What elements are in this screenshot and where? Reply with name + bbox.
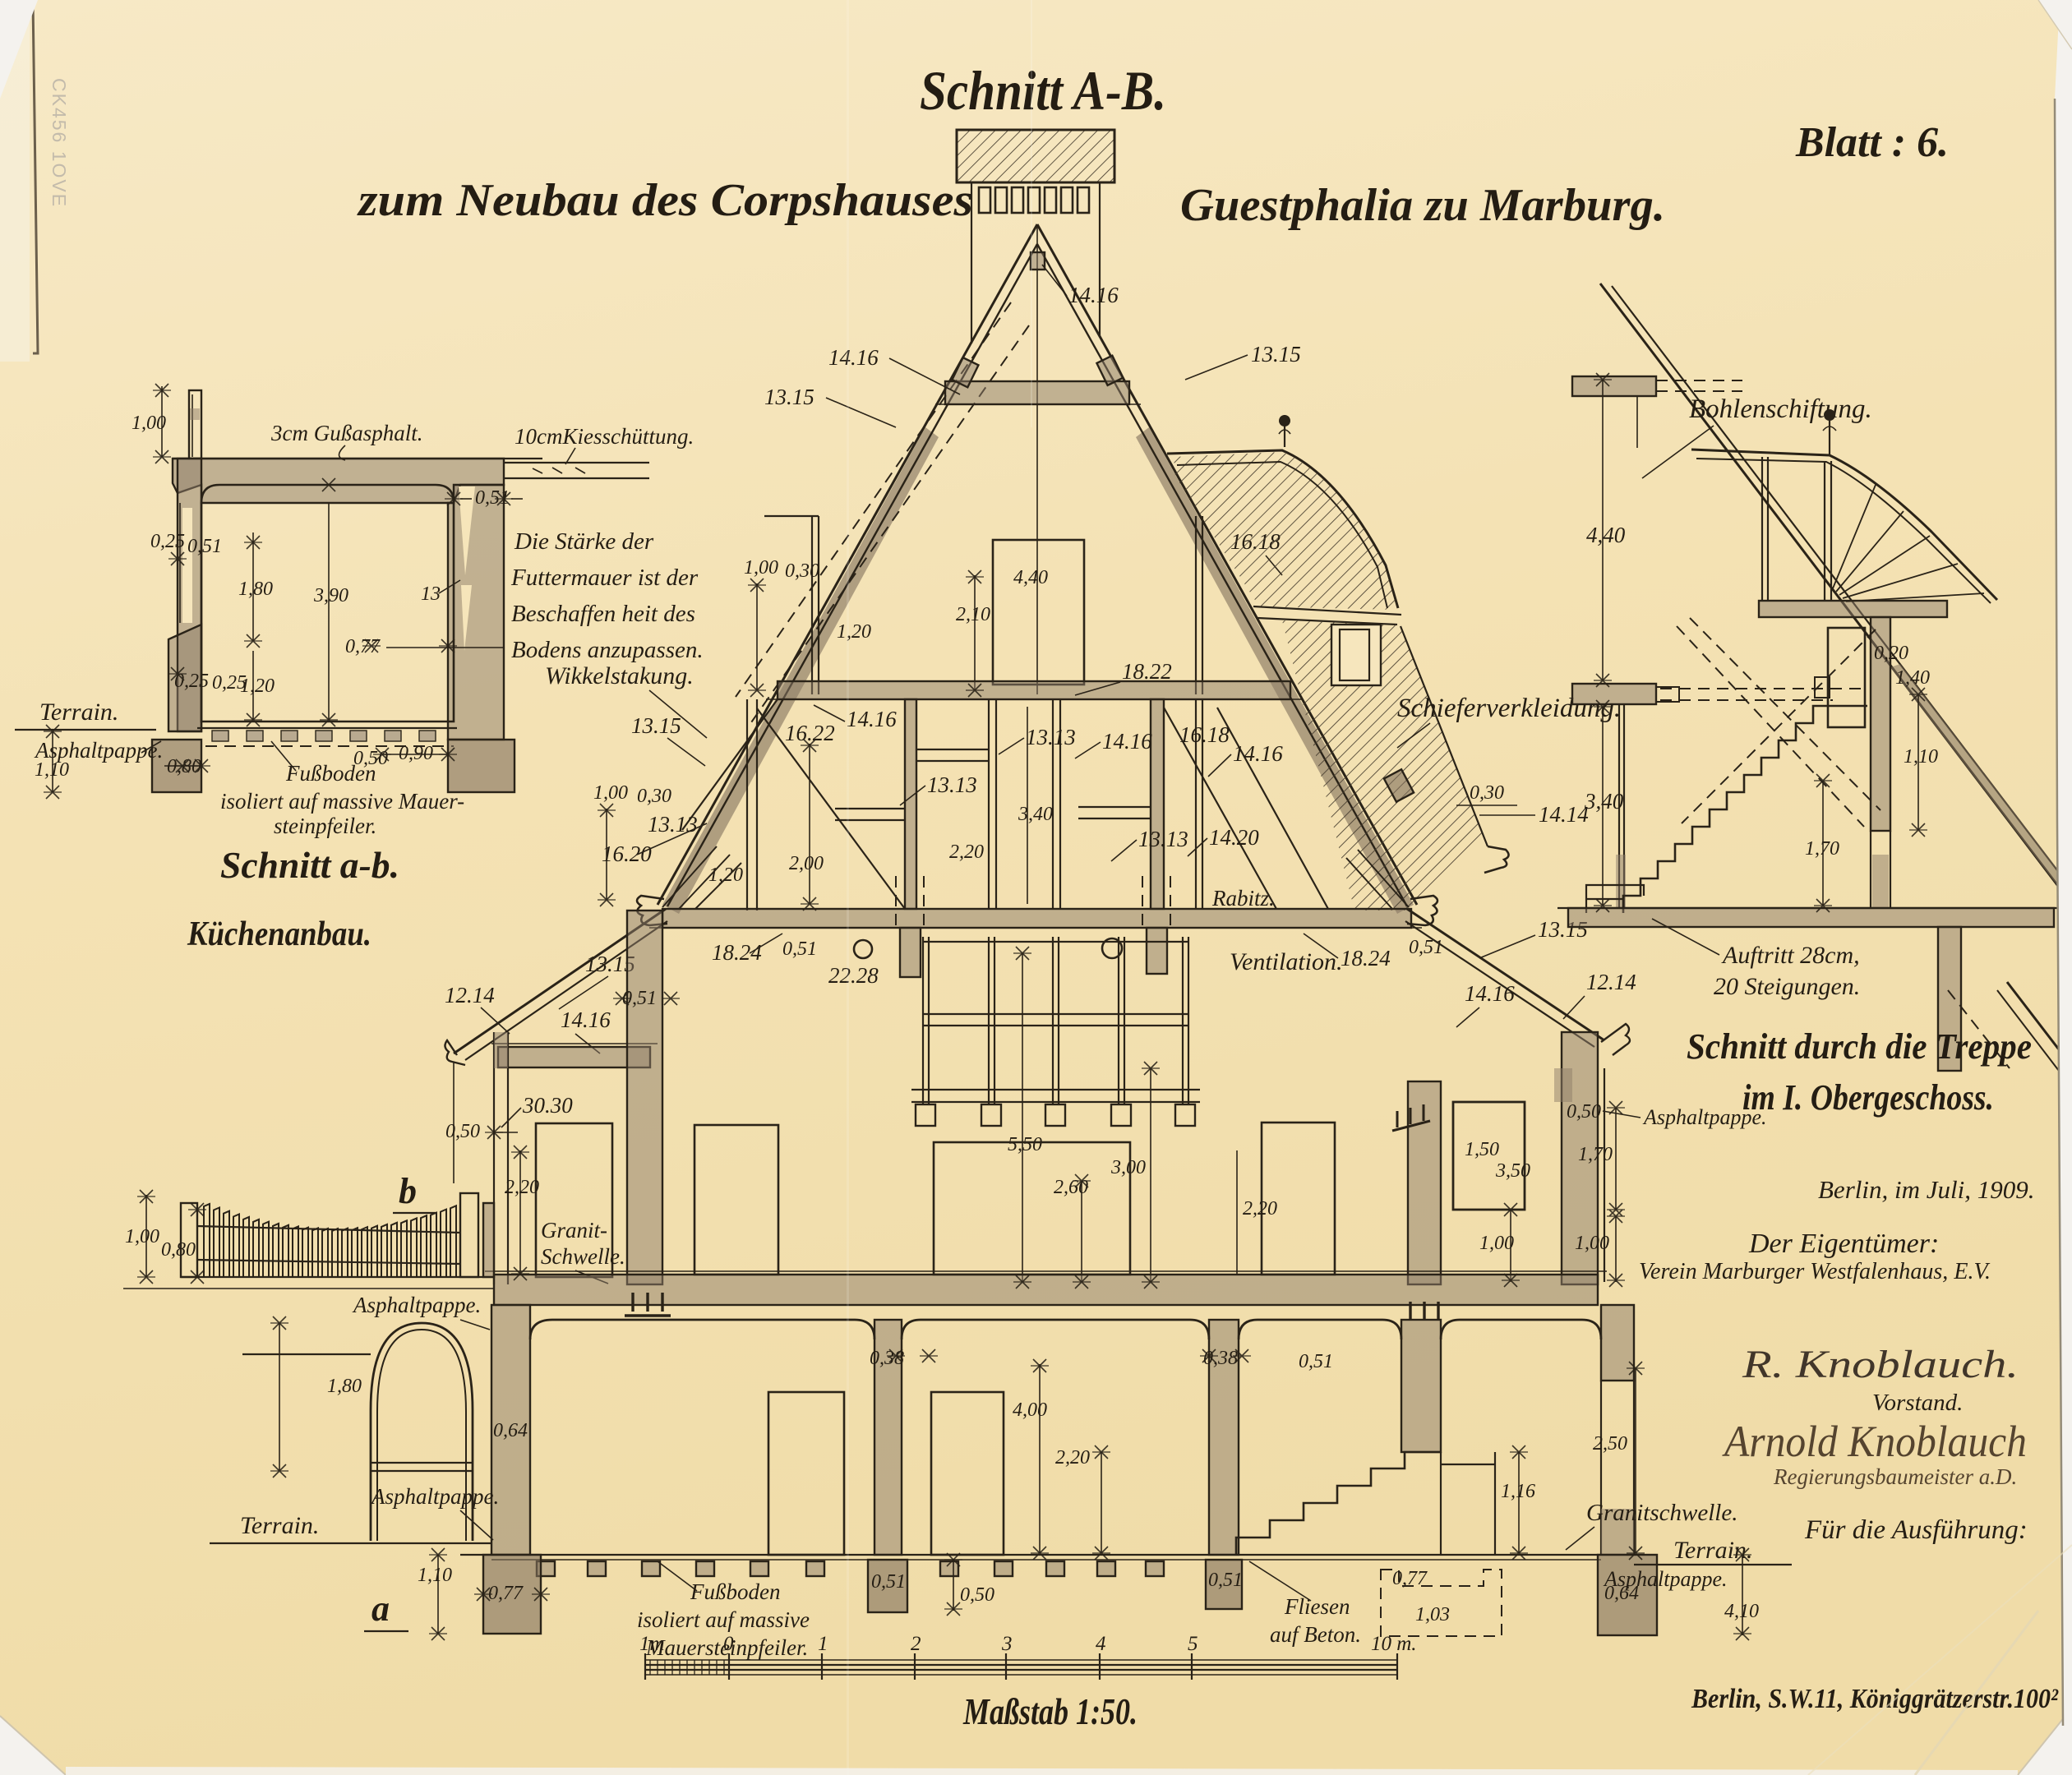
svg-text:im I. Obergeschoss.: im I. Obergeschoss.: [1742, 1077, 1994, 1118]
svg-text:18.24: 18.24: [1341, 946, 1391, 970]
svg-text:1,80: 1,80: [238, 579, 273, 600]
svg-text:0,90: 0,90: [399, 743, 433, 764]
svg-text:0,38: 0,38: [1203, 1348, 1238, 1369]
svg-text:Asphaltpappe.: Asphaltpappe.: [352, 1293, 481, 1317]
svg-text:22.28: 22.28: [828, 963, 879, 988]
svg-text:Arnold Knoblauch: Arnold Knoblauch: [1722, 1417, 2027, 1466]
svg-text:0,64: 0,64: [493, 1420, 528, 1441]
svg-text:1,00: 1,00: [132, 413, 166, 434]
svg-text:13.15: 13.15: [764, 385, 814, 409]
svg-text:1,00: 1,00: [1575, 1233, 1609, 1254]
svg-text:1,10: 1,10: [1904, 746, 1938, 768]
svg-text:3,00: 3,00: [1110, 1157, 1146, 1178]
svg-text:Asphaltpappe.: Asphaltpappe.: [370, 1484, 499, 1509]
svg-text:0,25: 0,25: [150, 531, 185, 552]
svg-text:30.30: 30.30: [522, 1093, 573, 1118]
svg-text:3,50: 3,50: [1495, 1160, 1530, 1182]
svg-text:3,40: 3,40: [1584, 789, 1624, 814]
svg-text:1,03: 1,03: [1415, 1604, 1450, 1625]
svg-text:zum Neubau des Corpshauses: zum Neubau des Corpshauses: [357, 175, 973, 226]
svg-text:1,70: 1,70: [1805, 838, 1839, 860]
svg-text:2,00: 2,00: [789, 853, 824, 874]
svg-text:13.13: 13.13: [648, 812, 698, 837]
svg-text:0,25: 0,25: [212, 672, 247, 694]
svg-text:Wikkelstakung.: Wikkelstakung.: [545, 662, 694, 689]
svg-text:Fußboden: Fußboden: [690, 1579, 780, 1604]
svg-text:2,20: 2,20: [1243, 1198, 1277, 1219]
svg-text:4: 4: [1096, 1633, 1106, 1655]
svg-text:1m: 1m: [639, 1633, 665, 1655]
svg-text:1,50: 1,50: [1465, 1139, 1499, 1160]
svg-text:Schnitt durch die Treppe: Schnitt durch die Treppe: [1687, 1026, 2032, 1067]
svg-text:14.16: 14.16: [1068, 283, 1119, 307]
svg-text:0,30: 0,30: [785, 560, 819, 582]
svg-text:Beschaffen heit des: Beschaffen heit des: [511, 601, 695, 627]
svg-text:Schwelle.: Schwelle.: [541, 1244, 625, 1269]
svg-text:1,80: 1,80: [327, 1376, 362, 1397]
svg-text:4,00: 4,00: [1013, 1399, 1047, 1421]
svg-text:1,00: 1,00: [593, 782, 628, 804]
svg-text:14.16: 14.16: [1102, 729, 1152, 754]
svg-text:1,00: 1,00: [1479, 1233, 1514, 1254]
svg-text:Ventilation.: Ventilation.: [1230, 948, 1343, 975]
svg-text:14.16: 14.16: [828, 345, 879, 370]
svg-text:4,10: 4,10: [1724, 1601, 1759, 1622]
svg-text:20 Steigungen.: 20 Steigungen.: [1714, 973, 1860, 1000]
svg-text:4,40: 4,40: [1586, 523, 1626, 547]
svg-text:13: 13: [421, 583, 441, 605]
svg-text:a: a: [371, 1588, 390, 1629]
svg-text:0,50: 0,50: [1567, 1101, 1601, 1123]
svg-text:2,50: 2,50: [1593, 1433, 1627, 1455]
svg-text:14.16: 14.16: [1465, 981, 1515, 1006]
svg-text:isoliert auf massive: isoliert auf massive: [637, 1607, 810, 1632]
svg-text:0,50: 0,50: [960, 1584, 994, 1606]
svg-text:16.22: 16.22: [785, 721, 835, 745]
svg-text:1,10: 1,10: [35, 759, 69, 781]
svg-text:Terrain.: Terrain.: [240, 1512, 319, 1539]
svg-text:0,20: 0,20: [1874, 643, 1908, 664]
svg-text:CK456 1OVE: CK456 1OVE: [48, 78, 70, 208]
svg-text:16.18: 16.18: [1179, 722, 1230, 747]
svg-text:14.20: 14.20: [1209, 825, 1259, 850]
svg-text:0,30: 0,30: [637, 786, 671, 807]
svg-text:2,20: 2,20: [949, 841, 984, 863]
svg-text:Für die Ausführung:: Für die Ausführung:: [1804, 1515, 2028, 1545]
svg-text:Asphaltpappe.: Asphaltpappe.: [1603, 1567, 1728, 1591]
svg-text:Berlin, S.W.11, Königgrätzerst: Berlin, S.W.11, Königgrätzerstr.100²: [1691, 1684, 2059, 1714]
svg-text:10 m.: 10 m.: [1371, 1633, 1417, 1655]
svg-text:isoliert auf massive Mauer-: isoliert auf massive Mauer-: [220, 789, 464, 814]
svg-text:2,20: 2,20: [505, 1177, 539, 1198]
svg-text:5: 5: [1188, 1633, 1198, 1655]
svg-text:0,51: 0,51: [782, 938, 817, 960]
svg-text:Der Eigentümer:: Der Eigentümer:: [1748, 1229, 1939, 1259]
svg-text:Futtermauer ist der: Futtermauer ist der: [510, 565, 699, 591]
svg-text:14.16: 14.16: [1233, 741, 1283, 766]
svg-text:Verein Marburger Westfalenhaus: Verein Marburger Westfalenhaus, E.V.: [1639, 1258, 1991, 1284]
svg-text:Granitschwelle.: Granitschwelle.: [1586, 1500, 1737, 1526]
svg-text:0,51: 0,51: [1409, 937, 1443, 958]
svg-text:1: 1: [818, 1633, 828, 1655]
svg-text:3,90: 3,90: [313, 585, 348, 606]
svg-text:14.16: 14.16: [847, 707, 897, 731]
svg-text:1,16: 1,16: [1501, 1481, 1535, 1502]
svg-text:1,10: 1,10: [418, 1565, 452, 1586]
svg-text:13.13: 13.13: [1138, 827, 1188, 851]
svg-text:Vorstand.: Vorstand.: [1872, 1390, 1963, 1416]
svg-text:0,51: 0,51: [1299, 1351, 1333, 1372]
svg-text:1,70: 1,70: [1578, 1144, 1613, 1165]
svg-text:Regierungsbaumeister a.D.: Regierungsbaumeister a.D.: [1773, 1464, 2017, 1489]
svg-text:Rabitz.: Rabitz.: [1211, 886, 1275, 911]
svg-text:0,30: 0,30: [1470, 782, 1504, 804]
svg-text:16.20: 16.20: [602, 841, 652, 866]
svg-text:2: 2: [911, 1633, 921, 1655]
svg-text:b: b: [399, 1171, 417, 1211]
svg-text:13.13: 13.13: [927, 772, 977, 797]
svg-text:0,51: 0,51: [1208, 1570, 1243, 1591]
svg-text:4,40: 4,40: [1013, 567, 1048, 588]
svg-text:0,77: 0,77: [1392, 1568, 1428, 1589]
svg-text:Guestphalia zu Marburg.: Guestphalia zu Marburg.: [1180, 180, 1665, 231]
svg-text:2,10: 2,10: [956, 604, 990, 625]
svg-text:0,51: 0,51: [871, 1571, 906, 1593]
svg-text:Küchenanbau.: Küchenanbau.: [187, 915, 371, 953]
svg-text:Terrain.: Terrain.: [39, 698, 118, 726]
svg-text:Berlin, im Juli, 1909.: Berlin, im Juli, 1909.: [1818, 1175, 2034, 1204]
svg-text:Blatt : 6.: Blatt : 6.: [1795, 119, 1949, 166]
svg-text:18.24: 18.24: [712, 940, 762, 965]
svg-text:13.15: 13.15: [1251, 342, 1301, 367]
svg-text:0: 0: [723, 1633, 734, 1655]
svg-text:3,40: 3,40: [1018, 804, 1053, 825]
svg-text:1,00: 1,00: [125, 1226, 159, 1247]
svg-text:Bohlenschiftung.: Bohlenschiftung.: [1689, 394, 1872, 424]
svg-text:Die Stärke der: Die Stärke der: [514, 528, 654, 555]
svg-text:14.14: 14.14: [1539, 802, 1589, 827]
svg-text:3cm Gußasphalt.: 3cm Gußasphalt.: [270, 421, 423, 445]
svg-text:18.22: 18.22: [1122, 659, 1172, 684]
svg-text:1,40: 1,40: [1895, 667, 1930, 689]
svg-text:0,77: 0,77: [345, 636, 381, 657]
svg-text:13.13: 13.13: [1026, 725, 1076, 749]
svg-text:2,20: 2,20: [1055, 1447, 1090, 1468]
svg-text:0,50: 0,50: [445, 1121, 480, 1142]
svg-text:Schnitt A-B.: Schnitt A-B.: [920, 59, 1166, 122]
svg-text:Fußboden: Fußboden: [285, 761, 376, 786]
svg-text:Auftritt 28cm,: Auftritt 28cm,: [1721, 942, 1860, 969]
svg-text:14.16: 14.16: [561, 1007, 611, 1032]
svg-text:auf Beton.: auf Beton.: [1270, 1622, 1361, 1647]
svg-text:R. Knoblauch.: R. Knoblauch.: [1742, 1343, 2019, 1386]
svg-text:1,20: 1,20: [708, 864, 743, 886]
svg-text:12.14: 12.14: [1586, 970, 1636, 994]
svg-text:10cmKiesschüttung.: 10cmKiesschüttung.: [515, 424, 694, 449]
svg-text:3: 3: [1001, 1633, 1013, 1655]
svg-text:0,77: 0,77: [488, 1583, 524, 1604]
svg-text:1,20: 1,20: [837, 621, 871, 643]
svg-text:steinpfeiler.: steinpfeiler.: [274, 814, 376, 838]
svg-text:5,50: 5,50: [1008, 1134, 1042, 1155]
svg-text:12.14: 12.14: [445, 983, 495, 1007]
svg-text:Bodens anzupassen.: Bodens anzupassen.: [511, 637, 704, 663]
svg-text:Maßstab 1:50.: Maßstab 1:50.: [962, 1690, 1138, 1732]
svg-text:0,51: 0,51: [187, 536, 222, 557]
svg-text:Schnitt a-b.: Schnitt a-b.: [220, 844, 399, 886]
svg-text:13.15: 13.15: [631, 713, 681, 738]
svg-text:1,00: 1,00: [744, 557, 778, 579]
svg-text:Terrain.: Terrain.: [1673, 1537, 1752, 1564]
svg-text:Fliesen: Fliesen: [1284, 1594, 1350, 1619]
svg-text:Granit-: Granit-: [541, 1218, 607, 1242]
svg-text:0,80: 0,80: [161, 1239, 196, 1261]
